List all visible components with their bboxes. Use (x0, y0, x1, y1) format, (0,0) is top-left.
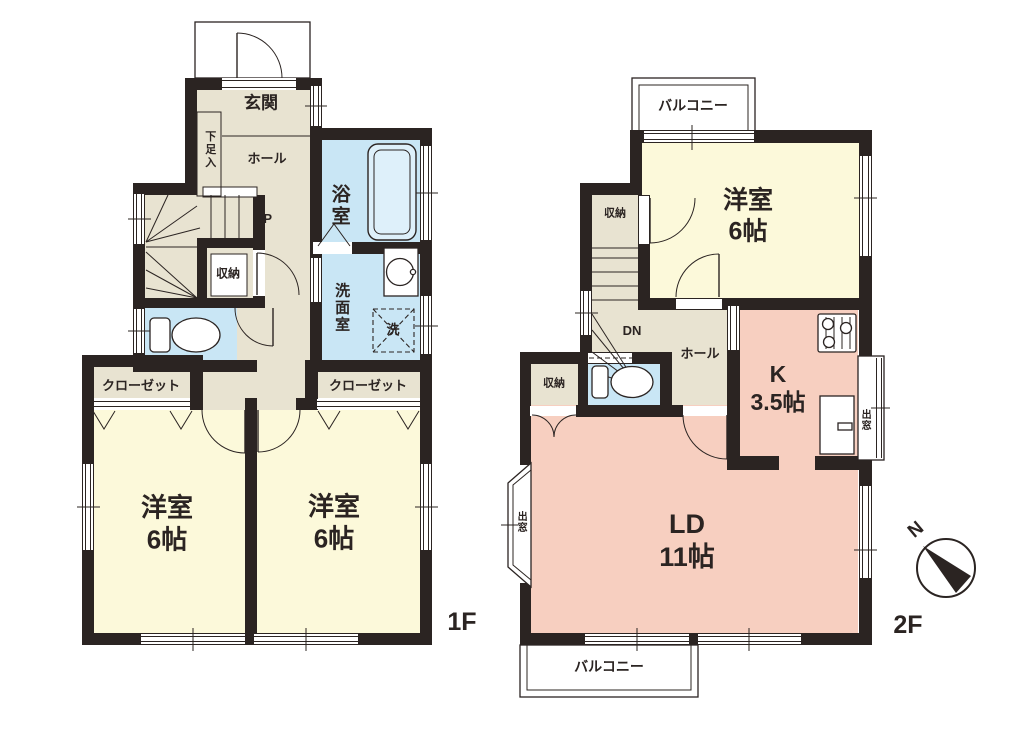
label-storage-upper-2f: 収納 (604, 207, 626, 220)
label-bay-window-left: 出窓 (514, 511, 526, 533)
washbasin-icon (384, 248, 418, 296)
label-washroom: 洗面室 (332, 283, 350, 334)
label-kitchen-name: K (751, 360, 806, 388)
label-stairs-down: DN (623, 323, 642, 339)
label-hall-2f: ホール (680, 346, 719, 362)
label-balcony-bottom: バルコニー (574, 658, 644, 675)
kitchen-sink-icon (820, 396, 854, 454)
compass-icon (917, 539, 975, 597)
entrance-porch (195, 22, 310, 78)
toilet-icon-2f (592, 366, 653, 398)
label-room-right-size: 6帖 (308, 523, 360, 555)
label-closet-left: クローゼット (102, 378, 180, 394)
label-bathroom: 浴室 (327, 184, 350, 228)
label-ld-size: 11帖 (659, 541, 715, 574)
label-room-left-size: 6帖 (141, 524, 193, 556)
label-storage-lower-2f: 収納 (543, 377, 565, 390)
floorplan-1f (77, 22, 438, 651)
label-storage-1f: 収納 (216, 267, 240, 282)
bathtub-icon (368, 144, 416, 240)
label-kitchen: K 3.5帖 (751, 360, 806, 416)
label-room-right-name: 洋室 (308, 491, 360, 523)
label-floor-2f: 2F (893, 610, 922, 641)
label-shoe-cabinet: 下足入 (202, 131, 215, 170)
washroom-door (311, 258, 321, 302)
floorplan-drawing (0, 0, 1009, 744)
label-closet-right: クローゼット (329, 378, 407, 394)
label-entrance: 玄関 (244, 94, 278, 115)
label-room-right-1f: 洋室 6帖 (308, 491, 360, 554)
label-ld-name: LD (659, 508, 715, 541)
label-stairs-up: UP (254, 211, 272, 227)
label-room-left-1f: 洋室 6帖 (141, 492, 193, 555)
label-room-left-name: 洋室 (141, 492, 193, 524)
label-floor-1f: 1F (447, 607, 476, 638)
floorplan-page: 玄関 ホール 下足入 UP 浴室 洗面室 洗 収納 クローゼット クローゼット … (0, 0, 1009, 744)
toilet-icon-1f (150, 318, 220, 352)
label-kitchen-size: 3.5帖 (751, 388, 806, 416)
label-room-2f: 洋室 6帖 (723, 186, 773, 247)
label-balcony-top: バルコニー (658, 97, 728, 114)
bay-window-right (858, 356, 890, 460)
label-room-2f-name: 洋室 (723, 186, 773, 217)
label-room-2f-size: 6帖 (723, 216, 773, 247)
label-living-dining: LD 11帖 (659, 508, 715, 574)
stove-icon (818, 314, 856, 352)
label-hall-1f: ホール (247, 151, 286, 167)
label-bay-window-right: 出窓 (858, 409, 870, 431)
label-laundry: 洗 (386, 322, 399, 338)
